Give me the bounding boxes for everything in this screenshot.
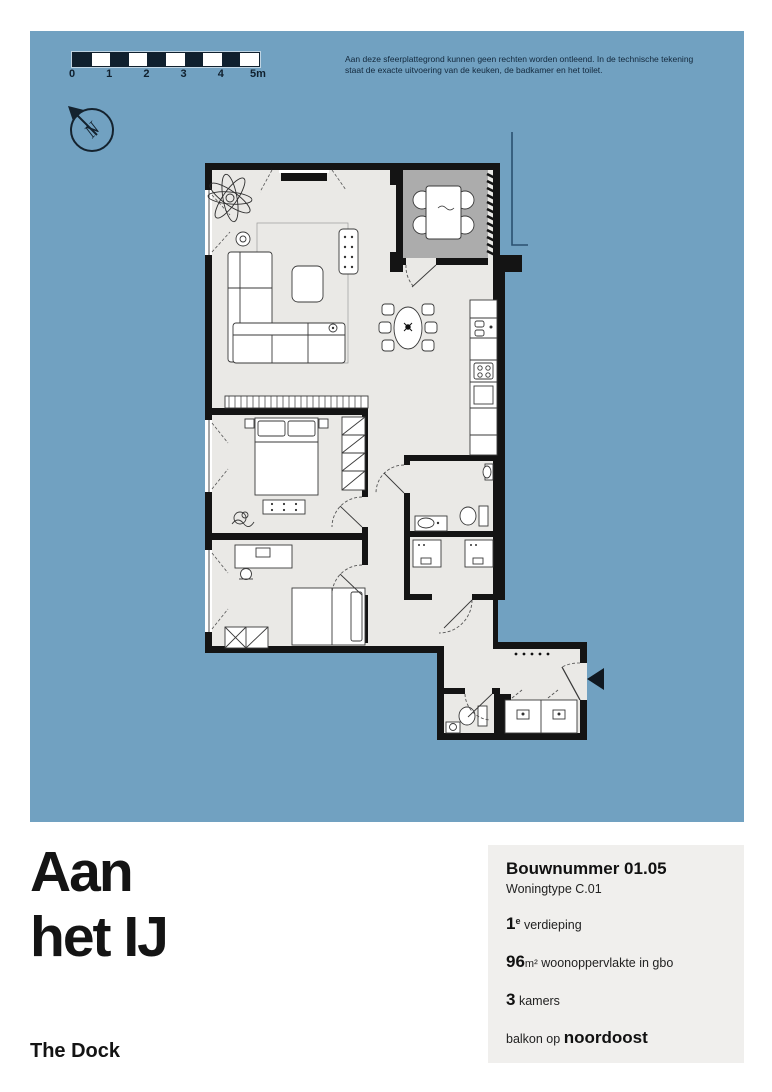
area-row: 96m² woonoppervlakte in gbo: [506, 952, 726, 972]
scale-segment: [185, 53, 204, 66]
monitor: [256, 548, 270, 557]
scale-segment: [73, 53, 92, 66]
convector: [225, 396, 368, 408]
north-compass-icon: N: [63, 100, 119, 156]
cooktop: [474, 363, 493, 379]
front-door-opening: [580, 663, 587, 700]
floorplan-svg: [160, 120, 620, 760]
scale-segment: [147, 53, 166, 66]
scale-segment: [222, 53, 241, 66]
page-title: Aan het IJ: [30, 840, 167, 970]
plan-board: 0 1 2 3 4 5m N Aan deze sfeerplattegrond…: [30, 31, 744, 822]
disclaimer-text: Aan deze sfeerplattegrond kunnen geen re…: [345, 54, 745, 76]
bed-bench: [263, 500, 305, 514]
scale-label: 3: [181, 68, 187, 80]
disclaimer-line1: Aan deze sfeerplattegrond kunnen geen re…: [345, 54, 745, 65]
scale-segment: [92, 53, 111, 66]
pillow: [351, 592, 362, 641]
rooms-row: 3 kamers: [506, 990, 726, 1010]
scale-bar: [72, 52, 260, 67]
kitchen-sink: [475, 321, 484, 327]
dining-chair: [422, 304, 434, 315]
bouwnummer: Bouwnummer 01.05: [506, 859, 726, 879]
scale-segment: [203, 53, 222, 66]
scale-label: 5m: [250, 68, 266, 80]
balcony: [403, 170, 495, 258]
title-line1: Aan: [30, 840, 167, 905]
sofa: [233, 323, 345, 363]
dining-area: [379, 304, 437, 351]
scale-label: 4: [218, 68, 224, 80]
nightstand: [245, 419, 254, 428]
toilet-tank: [479, 506, 488, 526]
nightstand: [319, 419, 328, 428]
kitchen: [470, 300, 497, 455]
rooms-value: 3: [506, 990, 515, 1009]
title-line2: het IJ: [30, 905, 167, 970]
tv-cabinet: [339, 229, 358, 274]
floor-label: verdieping: [524, 918, 582, 932]
coffee-table: [292, 266, 323, 302]
oven: [474, 386, 493, 404]
area-unit: m²: [525, 958, 538, 970]
scale-segment: [110, 53, 129, 66]
dining-chair: [422, 340, 434, 351]
window-radiator: [281, 173, 327, 181]
floor-row: 1e verdieping: [506, 914, 726, 934]
balcony-prefix: balkon op: [506, 1032, 560, 1046]
scale-segment: [129, 53, 148, 66]
woningtype: Woningtype C.01: [506, 882, 726, 896]
scale-segment: [240, 53, 259, 66]
scale-segment: [166, 53, 185, 66]
balcony-row: balkon op noordoost: [506, 1028, 726, 1048]
dining-chair: [382, 340, 394, 351]
dining-chair: [425, 322, 437, 333]
rooms-label: kamers: [519, 994, 560, 1008]
pillow: [258, 421, 285, 436]
site-outline: [512, 132, 528, 245]
wardrobe-1: [342, 417, 365, 490]
scale-label: 1: [106, 68, 112, 80]
balcony-value: noordoost: [564, 1028, 648, 1047]
wardrobe-2: [225, 627, 268, 648]
wc-toilet-tank: [478, 706, 487, 726]
area-value: 96: [506, 952, 525, 971]
dining-chair: [379, 322, 391, 333]
wc-toilet-bowl: [459, 707, 475, 725]
balcony-table: [426, 186, 461, 239]
pillow: [288, 421, 315, 436]
project-name: The Dock: [30, 1040, 120, 1063]
scale-labels: 0 1 2 3 4 5m: [72, 68, 258, 82]
info-panel: Bouwnummer 01.05 Woningtype C.01 1e verd…: [488, 845, 744, 1063]
scale-label: 2: [143, 68, 149, 80]
desk-chair: [241, 569, 252, 580]
floor-sup: e: [515, 916, 520, 926]
disclaimer-line2: staat de exacte uitvoering van de keuken…: [345, 65, 745, 76]
area-label: woonoppervlakte in gbo: [541, 956, 673, 970]
entrance-arrow-icon: [587, 668, 604, 690]
scale-label: 0: [69, 68, 75, 80]
toilet-bowl: [460, 507, 476, 525]
dining-chair: [382, 304, 394, 315]
